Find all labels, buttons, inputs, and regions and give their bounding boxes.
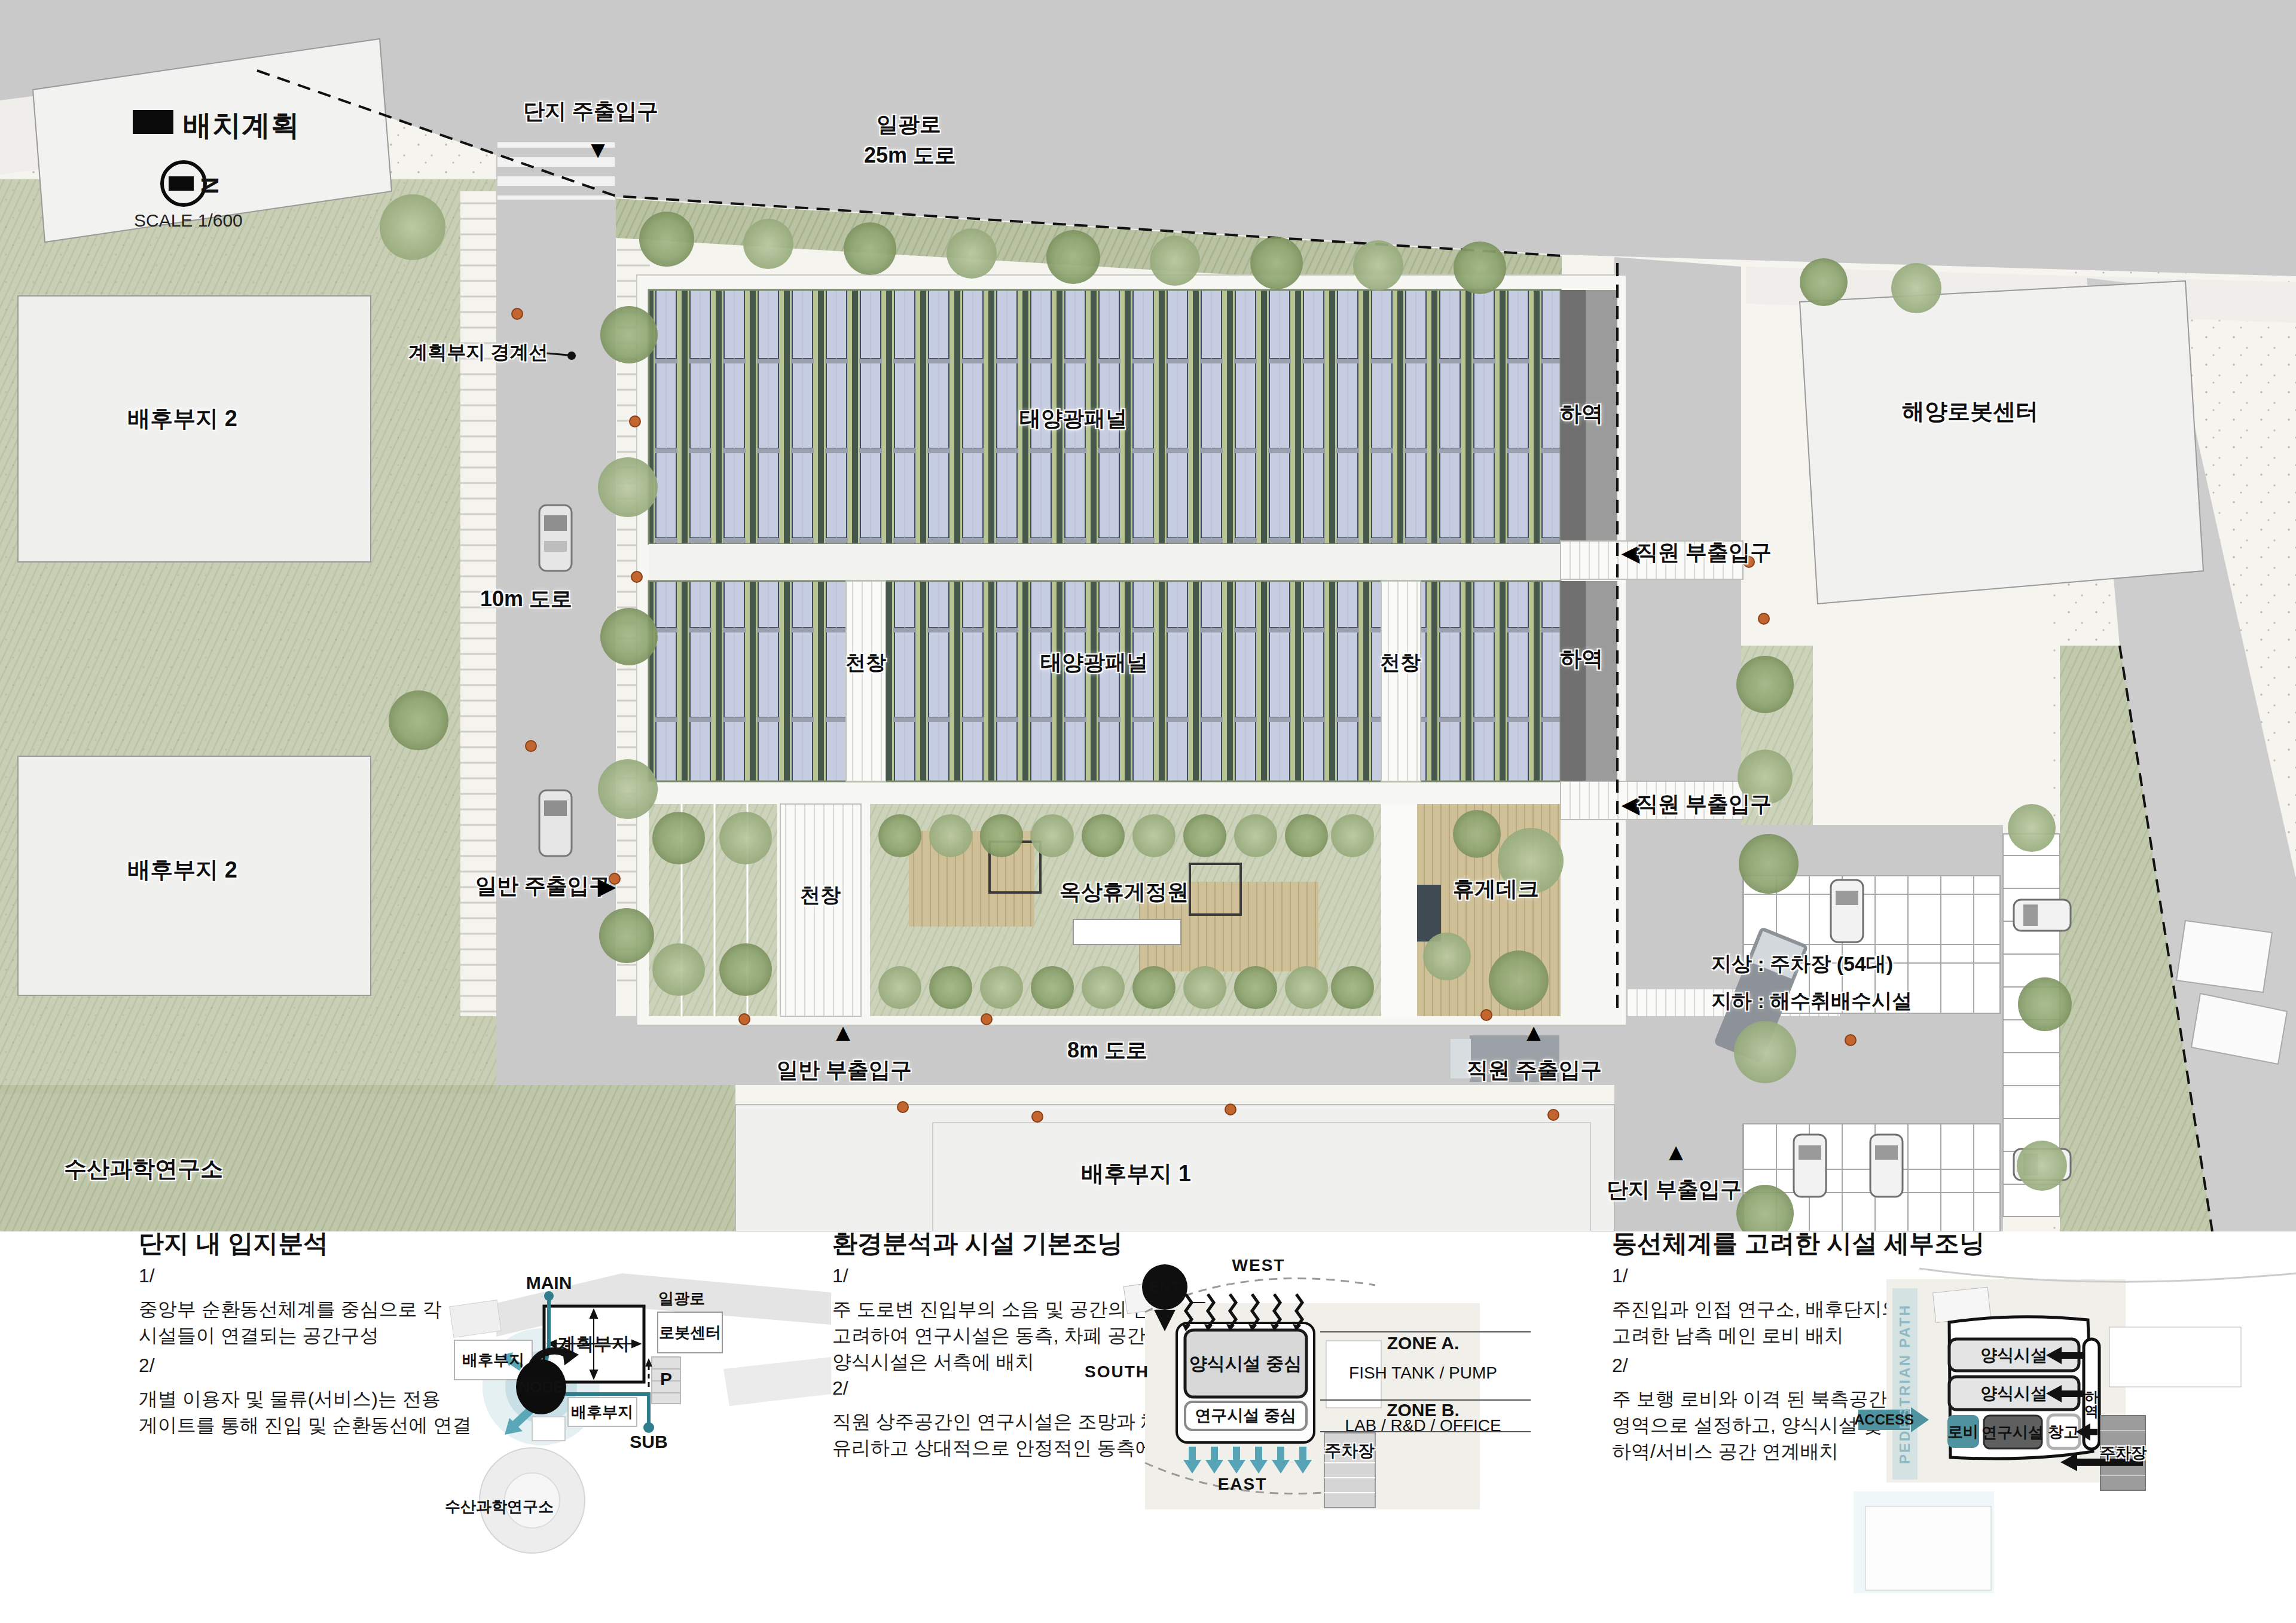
p3-farm2-label: 양식시설 [1980, 1385, 2047, 1402]
west-road-label: 10m 도로 [480, 588, 572, 610]
page-title: 배치계획 [183, 106, 300, 145]
p2-zone-b-desc: LAB / R&D / OFFICE [1345, 1417, 1501, 1434]
roof-garden-label: 옥상휴게정원 [1060, 881, 1189, 903]
parking-below-ground-label: 지하 : 해수취배수시설 [1711, 991, 1912, 1011]
main-road-name-label: 일광로 [877, 114, 941, 135]
rear-site-2-upper-label: 배후부지 2 [127, 407, 237, 430]
skylight-band3-label: 천창 [800, 885, 841, 905]
scale-label: SCALE 1/600 [134, 210, 243, 231]
car-icon [2014, 900, 2071, 931]
p1-sub-gate-label: SUB [630, 1433, 667, 1451]
p3-research-label: 연구시설 [1981, 1425, 2044, 1440]
fisheries-institute-label: 수산과학연구소 [64, 1157, 223, 1180]
north-letter: N [196, 177, 223, 194]
main-road-size-label: 25m 도로 [864, 145, 956, 166]
p3-storage-label: 창고 [2048, 1424, 2079, 1439]
p2-ent-label: ENT [1149, 1279, 1180, 1295]
p1-fisheries-label: 수산과학연구소 [445, 1499, 554, 1514]
legend-swatch [133, 110, 173, 134]
public-main-entrance-label: 일반 주출입구 [475, 875, 610, 897]
p1-main-gate-label: MAIN [526, 1274, 572, 1292]
p2-zone-a-desc: FISH TANK / PUMP [1349, 1365, 1497, 1381]
p1-road-label: 일광로 [658, 1291, 705, 1306]
p3-pedestrian-path-label: PEDESTRIAN PATH [1898, 1304, 1912, 1464]
robot-center-label: 해양로봇센터 [1902, 400, 2038, 423]
up-arrow-icon: ▲ [1522, 1020, 1546, 1044]
car-icon [539, 505, 572, 571]
site-plan-sheet: 배치계획 N SCALE 1/600 단지 주출입구 ▼ 일광로 25m 도로 … [0, 0, 2296, 1623]
p2-east-label: EAST [1218, 1476, 1268, 1493]
p2-parking-label: 주차장 [1324, 1442, 1375, 1459]
north-bar [169, 176, 194, 191]
rear-site-1-label: 배후부지 1 [1081, 1162, 1191, 1185]
south-road-label: 8m 도로 [1067, 1040, 1147, 1061]
p2-site [1177, 1323, 1314, 1442]
car-icon [1794, 1135, 1826, 1197]
p2-research-zone-label: 연구시설 중심 [1195, 1408, 1296, 1424]
complex-main-entrance-label: 단지 주출입구 [523, 100, 658, 122]
loading-lower-label: 하역 [1560, 648, 1603, 670]
up-arrow-icon: ▲ [1664, 1140, 1688, 1164]
p3-farm1-label: 양식시설 [1980, 1347, 2047, 1364]
right-arrow-icon: ▶ [598, 874, 616, 898]
solar-panel-band2-label: 태양광패널 [1040, 652, 1148, 673]
p2-west-label: WEST [1232, 1257, 1286, 1274]
skylight-band2-right-label: 천창 [1380, 652, 1421, 673]
panel1-title: 단지 내 입지분석 [139, 1227, 328, 1260]
p3-parking-label: 주차장 [2100, 1445, 2147, 1460]
staff-sub-entrance-lower-label: 직원 부출입구 [1636, 793, 1772, 815]
p3-access-label: ACCESS [1854, 1413, 1914, 1427]
boundary-label: 계획부지 경계선 [409, 343, 548, 362]
skylight-band2-left-label: 천창 [845, 652, 886, 673]
loading-upper-label: 하역 [1560, 403, 1603, 424]
panel2-diagram: WEST ENT SOUTH 양식시설 중심 연구시설 중심 ZONE A. F… [1088, 1252, 1531, 1590]
p1-node-label: NODE [518, 1379, 563, 1395]
staff-sub-entrance-upper-label: 직원 부출입구 [1636, 542, 1772, 563]
p1-parking-label: P [660, 1370, 672, 1388]
p2-south-label: SOUTH [1085, 1364, 1149, 1380]
rear-site-2-lower-label: 배후부지 2 [127, 858, 237, 881]
complex-sub-entrance-label: 단지 부출입구 [1607, 1179, 1742, 1200]
p2-farm-zone-label: 양식시설 중심 [1189, 1355, 1302, 1373]
car-icon [1831, 880, 1863, 942]
car-icon [539, 790, 572, 856]
rest-deck-label: 휴게데크 [1453, 878, 1539, 900]
p3-loading-label: 하역 [2084, 1380, 2099, 1408]
public-sub-entrance-label: 일반 부출입구 [777, 1059, 912, 1081]
panel3-diagram: PEDESTRIAN PATH ACCESS 양식시설 양식시설 로비 연구시설… [1854, 1255, 2296, 1593]
p3-lobby-label: 로비 [1947, 1424, 1979, 1439]
p1-rear-lower-label: 배후부지 [571, 1404, 633, 1420]
solar-panel-band1-label: 태양광패널 [1019, 408, 1127, 429]
site-plan-graphics [0, 0, 2296, 1231]
north-arrow-icon: N [160, 160, 207, 207]
p1-robot-center-label: 로봇센터 [659, 1325, 721, 1340]
down-arrow-icon: ▼ [586, 137, 610, 161]
panel1-diagram: MAIN 일광로 배후부지 계획부지 로봇센터 P NODE 배후부지 SUB … [442, 1267, 831, 1554]
parking-above-ground-label: 지상 : 주차장 (54대) [1711, 953, 1893, 974]
up-arrow-icon: ▲ [831, 1020, 855, 1044]
p2-zone-a-label: ZONE A. [1387, 1334, 1460, 1352]
staff-main-entrance-label: 직원 주출입구 [1467, 1059, 1602, 1081]
car-icon [1870, 1135, 1903, 1197]
p1-rear-upper-label: 배후부지 [462, 1352, 524, 1368]
panel2-title: 환경분석과 시설 기본조닝 [832, 1227, 1122, 1260]
p1-plan-site-label: 계획부지 [558, 1335, 630, 1353]
site-plan: 배치계획 N SCALE 1/600 단지 주출입구 ▼ 일광로 25m 도로 … [0, 0, 2296, 1231]
